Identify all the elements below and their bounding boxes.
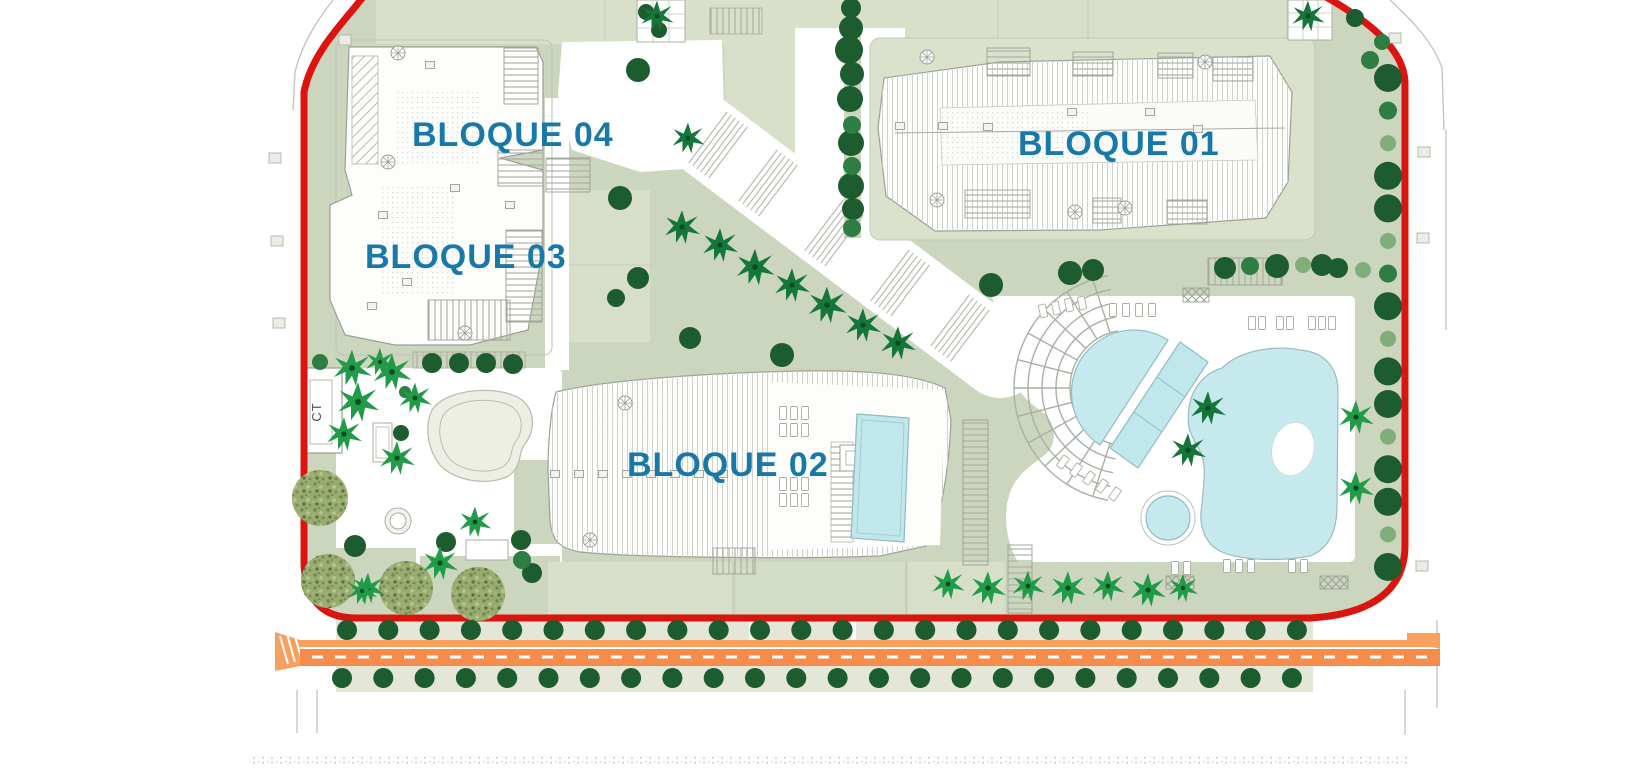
road-dash — [588, 656, 599, 659]
ct-transformer-hut: CT — [304, 368, 342, 453]
edge-tree — [1379, 102, 1397, 120]
tree — [679, 327, 701, 349]
tree — [513, 551, 531, 569]
road-dash — [1347, 656, 1358, 659]
stair-ramp — [963, 420, 988, 565]
sun-lounger — [1172, 562, 1179, 575]
tree — [1082, 259, 1104, 281]
lagoon-pool — [1188, 348, 1338, 559]
road-dash — [749, 656, 760, 659]
road-dash — [404, 656, 415, 659]
sun-lounger — [791, 407, 798, 420]
road-dash — [956, 656, 967, 659]
sun-lounger — [1123, 304, 1130, 317]
spiral-stair — [391, 46, 405, 60]
sun-lounger — [1277, 317, 1284, 330]
edge-tree — [1374, 455, 1402, 483]
rooftop-pool — [851, 414, 909, 542]
street-tree — [874, 620, 894, 640]
street-tree — [544, 620, 564, 640]
tree — [843, 116, 861, 134]
road-dash — [542, 656, 553, 659]
road-dash — [1232, 656, 1243, 659]
trellis — [1320, 576, 1348, 589]
street-tree — [828, 668, 848, 688]
road-dash — [1209, 656, 1220, 659]
tree — [770, 343, 794, 367]
edge-tree — [1374, 64, 1402, 92]
tree — [503, 354, 523, 374]
tree — [422, 353, 442, 373]
sun-lounger — [802, 494, 809, 507]
tree — [511, 530, 531, 550]
sun-lounger — [780, 407, 787, 420]
olive-tree-texture — [301, 554, 355, 608]
street-tree — [952, 668, 972, 688]
road-dash — [1324, 656, 1335, 659]
road-dash — [1416, 656, 1427, 659]
road-dash — [726, 656, 737, 659]
street-tree — [957, 620, 977, 640]
tree — [1295, 257, 1311, 273]
roof-box — [939, 123, 948, 130]
sun-lounger — [791, 424, 798, 437]
tree — [1058, 261, 1082, 285]
bloque-02-label: BLOQUE 02 — [627, 446, 829, 484]
edge-tree — [1374, 292, 1402, 320]
street-tree — [1080, 620, 1100, 640]
spiral-stair — [381, 155, 395, 169]
roof-box — [368, 303, 377, 310]
bloque-01-label: BLOQUE 01 — [1018, 125, 1220, 163]
road-centerline-dashes — [312, 656, 1427, 659]
road-dash — [358, 656, 369, 659]
bloque-03-label: BLOQUE 03 — [365, 238, 567, 276]
pond-outline — [428, 390, 533, 481]
sun-lounger — [1149, 304, 1156, 317]
street-tree — [1117, 668, 1137, 688]
road-dash — [703, 656, 714, 659]
road-dash — [979, 656, 990, 659]
street-tree — [378, 620, 398, 640]
edge-tree — [1380, 526, 1396, 542]
edge-tree — [1374, 194, 1402, 222]
edge-tree — [1374, 553, 1402, 581]
utility-box — [339, 35, 351, 45]
road-dash — [450, 656, 461, 659]
sun-lounger — [1287, 317, 1294, 330]
edge-tree — [1374, 357, 1402, 385]
spiral-stair — [1068, 205, 1082, 219]
tree — [627, 267, 649, 289]
tree — [1361, 51, 1379, 69]
sun-lounger — [1329, 317, 1336, 330]
street-tree — [1075, 668, 1095, 688]
sun-lounger — [1289, 560, 1296, 573]
road-dash — [1002, 656, 1013, 659]
olive-tree-texture — [451, 567, 505, 621]
olive-tree-texture — [292, 470, 348, 526]
road-dash — [1301, 656, 1312, 659]
sun-lounger — [780, 424, 787, 437]
road-dash — [634, 656, 645, 659]
road-dash — [312, 656, 323, 659]
tree — [449, 353, 469, 373]
street-tree — [662, 668, 682, 688]
street-tree — [1034, 668, 1054, 688]
edge-tree — [1380, 429, 1396, 445]
tree — [1214, 257, 1236, 279]
utility-box — [1389, 33, 1401, 43]
tree — [843, 219, 861, 237]
tree — [1374, 34, 1390, 50]
site-plan-drawing: CT — [0, 0, 1638, 773]
sun-lounger — [1136, 304, 1143, 317]
garden-pavilion — [466, 540, 508, 560]
road-dash — [887, 656, 898, 659]
road-dash — [680, 656, 691, 659]
edge-tree — [1374, 390, 1402, 418]
spiral-stair — [920, 50, 934, 64]
street-tree — [1163, 620, 1183, 640]
street-tree — [332, 668, 352, 688]
sun-lounger — [1224, 560, 1231, 573]
site-plan-canvas: CT — [0, 0, 1638, 773]
tree — [838, 173, 864, 199]
roof-box — [506, 202, 515, 209]
tree — [312, 354, 328, 370]
road-dash — [910, 656, 921, 659]
street-tree — [1287, 620, 1307, 640]
tree — [393, 425, 409, 441]
tree — [626, 58, 650, 82]
tree — [1355, 262, 1371, 278]
tree — [843, 157, 861, 175]
roof-box — [1146, 109, 1155, 116]
road-dash — [1025, 656, 1036, 659]
street-tree — [1282, 668, 1302, 688]
tree — [1346, 9, 1364, 27]
sun-lounger — [1184, 562, 1191, 575]
edge-tree — [1380, 331, 1396, 347]
street-tree — [1158, 668, 1178, 688]
trellis — [1183, 288, 1209, 302]
road-dash — [657, 656, 668, 659]
tree — [608, 186, 632, 210]
street-tree — [1204, 620, 1224, 640]
tree — [1265, 254, 1289, 278]
road-dash — [1255, 656, 1266, 659]
street-tree — [833, 620, 853, 640]
road-dash — [772, 656, 783, 659]
tree — [476, 353, 496, 373]
street-tree — [786, 668, 806, 688]
road-dash — [496, 656, 507, 659]
street-tree — [1122, 620, 1142, 640]
spiral-stair — [618, 396, 632, 410]
roof-box — [575, 471, 584, 478]
street-tree — [709, 620, 729, 640]
sun-lounger — [1319, 317, 1326, 330]
sun-lounger — [1248, 560, 1255, 573]
road-dash — [1094, 656, 1105, 659]
spiral-stair — [458, 326, 472, 340]
street-tree — [1039, 620, 1059, 640]
road-dash — [335, 656, 346, 659]
sun-lounger — [1301, 560, 1308, 573]
street-tree — [626, 620, 646, 640]
street-tree — [1246, 620, 1266, 640]
ct-label: CT — [309, 402, 324, 421]
olive-tree-texture — [379, 561, 433, 615]
road-dash — [565, 656, 576, 659]
tree — [842, 198, 864, 220]
sun-lounger — [1249, 317, 1256, 330]
utility-box — [1418, 147, 1430, 157]
sun-lounger — [802, 407, 809, 420]
street-tree — [1241, 668, 1261, 688]
spiral-stair — [1198, 55, 1212, 69]
street-tree — [915, 620, 935, 640]
road-dash — [933, 656, 944, 659]
street-tree — [998, 620, 1018, 640]
roof-box — [451, 185, 460, 192]
spa-pool — [1141, 491, 1195, 545]
road-median — [300, 640, 1440, 647]
street-tree — [993, 668, 1013, 688]
sun-lounger — [802, 424, 809, 437]
roof-box — [896, 123, 905, 130]
street-tree — [910, 668, 930, 688]
offsite-texture-strip — [250, 757, 1410, 765]
street-tree — [791, 620, 811, 640]
tree — [1241, 257, 1259, 275]
roof-box — [599, 471, 608, 478]
utility-box — [271, 236, 283, 246]
road-dash — [611, 656, 622, 659]
road-dash — [381, 656, 392, 659]
tree — [1328, 258, 1348, 278]
sun-lounger — [1259, 317, 1266, 330]
street-tree — [704, 668, 724, 688]
road-dash — [519, 656, 530, 659]
street-tree — [539, 668, 559, 688]
sun-lounger — [791, 494, 798, 507]
spiral-stair — [583, 533, 597, 547]
street-tree — [667, 620, 687, 640]
tree — [979, 273, 1003, 297]
utility-box — [269, 153, 281, 163]
road-dash — [1370, 656, 1381, 659]
street-tree — [420, 620, 440, 640]
sun-lounger — [1309, 317, 1316, 330]
road-dash — [795, 656, 806, 659]
road-dash — [818, 656, 829, 659]
street-tree — [497, 668, 517, 688]
sun-lounger — [780, 494, 787, 507]
road-dash — [1186, 656, 1197, 659]
road-dash — [1393, 656, 1404, 659]
street-tree — [415, 668, 435, 688]
edge-tree — [1380, 135, 1396, 151]
road-dash — [841, 656, 852, 659]
road-dash — [1048, 656, 1059, 659]
tree — [837, 86, 863, 112]
utility-box — [1417, 233, 1429, 243]
roof-box — [984, 124, 993, 131]
utility-box — [273, 318, 285, 328]
roof-box — [403, 279, 412, 286]
sun-lounger — [1110, 304, 1117, 317]
street-tree — [502, 620, 522, 640]
street-tree — [337, 620, 357, 640]
tree — [344, 535, 366, 557]
roof-box — [1068, 109, 1077, 116]
street-tree — [869, 668, 889, 688]
road-dash — [1140, 656, 1151, 659]
bloque-04-label: BLOQUE 04 — [412, 116, 614, 154]
tree — [835, 36, 863, 64]
tree — [840, 62, 864, 86]
sun-lounger — [1236, 560, 1243, 573]
edge-tree — [1379, 265, 1397, 283]
street-tree — [745, 668, 765, 688]
spiral-stair — [1118, 201, 1132, 215]
street-tree — [456, 668, 476, 688]
road-dash — [1278, 656, 1289, 659]
street-tree — [373, 668, 393, 688]
road-dash — [473, 656, 484, 659]
street-tree — [1199, 668, 1219, 688]
road-dash — [864, 656, 875, 659]
road-dash — [1071, 656, 1082, 659]
roof-box — [426, 62, 435, 69]
street-tree — [461, 620, 481, 640]
road-dash — [1117, 656, 1128, 659]
tree — [607, 289, 625, 307]
street-tree — [621, 668, 641, 688]
roof-box — [379, 212, 388, 219]
edge-tree — [1374, 488, 1402, 516]
spiral-stair — [930, 193, 944, 207]
utility-box — [1416, 561, 1428, 571]
roof-box — [551, 471, 560, 478]
street-tree — [580, 668, 600, 688]
road-dash — [1163, 656, 1174, 659]
edge-tree — [1374, 162, 1402, 190]
fountain — [385, 508, 411, 534]
edge-tree — [1380, 233, 1396, 249]
street-tree — [750, 620, 770, 640]
road-dash — [427, 656, 438, 659]
street-tree — [585, 620, 605, 640]
